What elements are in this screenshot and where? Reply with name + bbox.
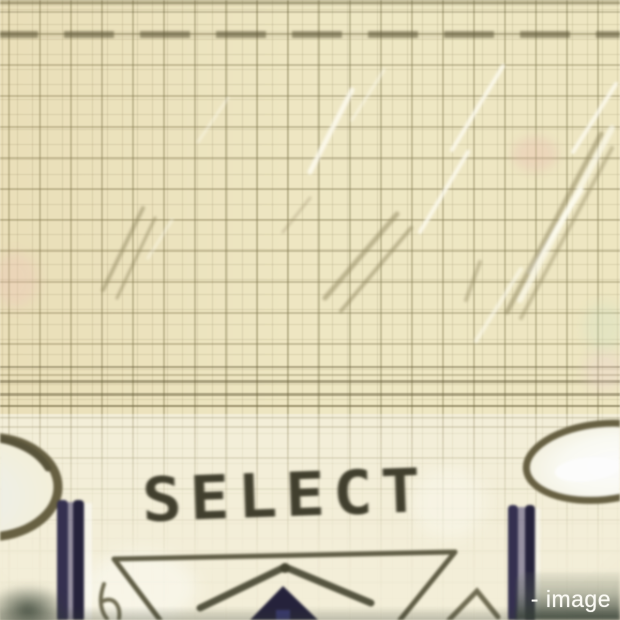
watermark-image-label: - image (531, 586, 611, 613)
chevron-apex-dot (280, 563, 290, 573)
select-label: SELECT (141, 460, 443, 531)
left-oval-hole (0, 437, 58, 537)
device-photo: SELECT - image (0, 0, 620, 620)
right-oval-hole (522, 416, 620, 507)
bottom-shadow (0, 606, 620, 620)
photo-content: SELECT (0, 0, 620, 620)
